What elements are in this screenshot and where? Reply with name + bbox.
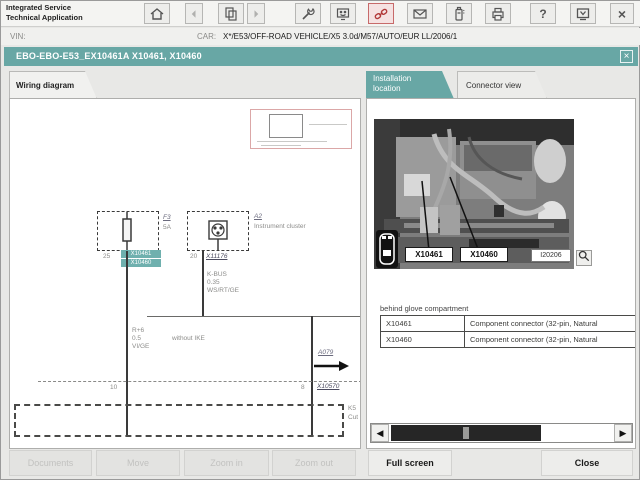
tab-installation-location-line1: Installation bbox=[373, 74, 454, 84]
instrument-cluster-box[interactable] bbox=[187, 211, 249, 251]
photo-label-x10461: X10461 bbox=[405, 247, 453, 262]
left-wire-color: VI/GE bbox=[132, 343, 149, 351]
k-bus-wire-label: K-BUS 0.35 WS/RT/GE bbox=[207, 271, 239, 295]
back-icon bbox=[188, 8, 200, 20]
overview-line bbox=[257, 141, 327, 142]
bottom-box-note: Cut bbox=[348, 414, 358, 422]
scroll-left-button[interactable]: ◀ bbox=[371, 424, 389, 442]
vin-label: VIN: bbox=[10, 32, 26, 41]
magnifier-icon bbox=[578, 249, 590, 267]
tab-installation-location-line2: location bbox=[373, 84, 454, 94]
instrument-cluster-icon bbox=[188, 212, 248, 250]
terminal-icon bbox=[335, 6, 351, 22]
connector-table: X10461 Component connector (32-pin, Natu… bbox=[380, 315, 636, 348]
cluster-ref-link[interactable]: A2 bbox=[254, 213, 262, 221]
table-row[interactable]: X10460 Component connector (32-pin, Natu… bbox=[381, 332, 637, 348]
main-toolbar: Integrated Service Technical Application bbox=[1, 1, 640, 27]
documents-button[interactable]: Documents bbox=[9, 450, 92, 476]
forward-icon bbox=[250, 8, 262, 20]
k-bus-color: WS/RT/GE bbox=[207, 287, 239, 295]
fuse-ref-link[interactable]: F3 bbox=[163, 214, 171, 222]
overview-viewport-rect bbox=[269, 114, 303, 138]
forward-button[interactable] bbox=[247, 3, 265, 24]
k-bus-line bbox=[147, 316, 361, 317]
printer-icon bbox=[490, 6, 506, 22]
zoom-in-button[interactable]: Zoom in bbox=[184, 450, 269, 476]
wrench-button[interactable] bbox=[295, 3, 321, 24]
printer-button[interactable] bbox=[485, 3, 511, 24]
fuse-rating: 5A bbox=[163, 224, 171, 232]
connector-link-x11176[interactable]: X11176 bbox=[206, 253, 227, 261]
app-title: Integrated Service Technical Application bbox=[6, 3, 83, 23]
page-ref-link[interactable]: A079 bbox=[318, 349, 333, 357]
connection-button[interactable] bbox=[368, 3, 394, 24]
k-bus-size: 0.35 bbox=[207, 279, 239, 287]
installation-location-panel: X10461 X10460 I20206 behind glove compar… bbox=[366, 98, 636, 449]
cluster-name: Instrument cluster bbox=[254, 223, 306, 231]
back-button[interactable] bbox=[185, 3, 203, 24]
zoom-out-button[interactable]: Zoom out bbox=[272, 450, 356, 476]
vehicle-bar: VIN: CAR: X*/E53/OFF-ROAD VEHICLE/X5 3.0… bbox=[1, 28, 640, 45]
left-wire-label: R+6 0.5 VI/GE bbox=[132, 327, 149, 351]
document-titlebar: EBO-EBO-E53_EX10461A X10461, X10460 × bbox=[4, 47, 638, 66]
diagram-overview-inset[interactable] bbox=[250, 109, 352, 149]
fuse-pin: 25 bbox=[103, 253, 110, 261]
scrollbar-thumb[interactable] bbox=[391, 425, 541, 441]
battery-button[interactable] bbox=[446, 3, 472, 24]
car-label: CAR: bbox=[197, 32, 216, 41]
minimize-button[interactable] bbox=[570, 3, 596, 24]
document-close-button[interactable]: × bbox=[620, 50, 633, 63]
car-value: X*/E53/OFF-ROAD VEHICLE/X5 3.0d/M57/AUTO… bbox=[223, 32, 457, 41]
overview-line bbox=[309, 124, 347, 125]
photo-zoom-button[interactable] bbox=[576, 250, 592, 266]
connector-link-x10570[interactable]: X10570 bbox=[317, 383, 339, 391]
photo-image-id: I20206 bbox=[531, 249, 571, 262]
battery-icon bbox=[451, 6, 467, 22]
mail-icon bbox=[412, 6, 428, 22]
full-screen-button[interactable]: Full screen bbox=[368, 450, 452, 476]
document-title: EBO-EBO-E53_EX10461A X10461, X10460 bbox=[16, 51, 202, 61]
separator-pin-right: 8 bbox=[301, 384, 305, 392]
monitor-minimize-icon bbox=[575, 6, 591, 22]
wire-cluster-vertical bbox=[202, 251, 204, 317]
wrench-icon bbox=[300, 6, 316, 22]
bottom-box-ref: K5 bbox=[348, 405, 356, 413]
fuse-component-box[interactable] bbox=[97, 211, 159, 251]
mail-button[interactable] bbox=[407, 3, 433, 24]
close-button[interactable]: Close bbox=[541, 450, 633, 476]
connector-name-cell: X10461 bbox=[381, 316, 465, 332]
connector-separator-line bbox=[38, 381, 361, 382]
tab-installation-location[interactable]: Installation location bbox=[366, 71, 454, 99]
help-icon: ? bbox=[539, 8, 546, 20]
pages-icon bbox=[223, 6, 239, 22]
overview-line bbox=[261, 145, 301, 146]
tab-wiring-diagram[interactable]: Wiring diagram bbox=[9, 71, 97, 99]
home-button[interactable] bbox=[144, 3, 170, 24]
app-title-line1: Integrated Service bbox=[6, 3, 83, 13]
car-position-icon bbox=[376, 230, 398, 268]
tab-connector-view[interactable]: Connector view bbox=[457, 71, 547, 99]
terminal-button[interactable] bbox=[330, 3, 356, 24]
scroll-right-button[interactable]: ▶ bbox=[614, 424, 632, 442]
k-bus-name: K-BUS bbox=[207, 271, 239, 279]
cluster-pin: 20 bbox=[190, 253, 197, 261]
page-ref-arrow-icon bbox=[314, 359, 350, 377]
connection-icon bbox=[373, 6, 389, 22]
app-close-button[interactable]: × bbox=[610, 3, 634, 24]
scrollbar-grip bbox=[463, 427, 469, 439]
connector-desc-cell: Component connector (32-pin, Natural bbox=[465, 316, 637, 332]
left-wire-circuit: R+6 bbox=[132, 327, 149, 335]
app-title-line2: Technical Application bbox=[6, 13, 83, 23]
location-caption: behind glove compartment bbox=[380, 304, 468, 313]
horizontal-scrollbar: ◀ ▶ bbox=[370, 423, 633, 443]
photo-label-x10460: X10460 bbox=[460, 247, 508, 262]
left-wire-size: 0.5 bbox=[132, 335, 149, 343]
app-window: Integrated Service Technical Application bbox=[0, 0, 640, 480]
wiring-diagram-panel: F3 5A 25 X10461 X10460 A2 Instrument clu… bbox=[9, 98, 361, 449]
separator-pin-left: 10 bbox=[110, 384, 117, 392]
move-button[interactable]: Move bbox=[96, 450, 180, 476]
connector-name-cell: X10460 bbox=[381, 332, 465, 348]
home-icon bbox=[149, 6, 165, 22]
branch-note: without IKE bbox=[172, 335, 205, 343]
fuse-icon bbox=[98, 212, 158, 250]
connector-desc-cell: Component connector (32-pin, Natural bbox=[465, 332, 637, 348]
pages-button[interactable] bbox=[218, 3, 244, 24]
table-row[interactable]: X10461 Component connector (32-pin, Natu… bbox=[381, 316, 637, 332]
close-icon: × bbox=[618, 7, 626, 21]
bottom-component-box bbox=[14, 404, 344, 437]
help-button[interactable]: ? bbox=[530, 3, 556, 24]
